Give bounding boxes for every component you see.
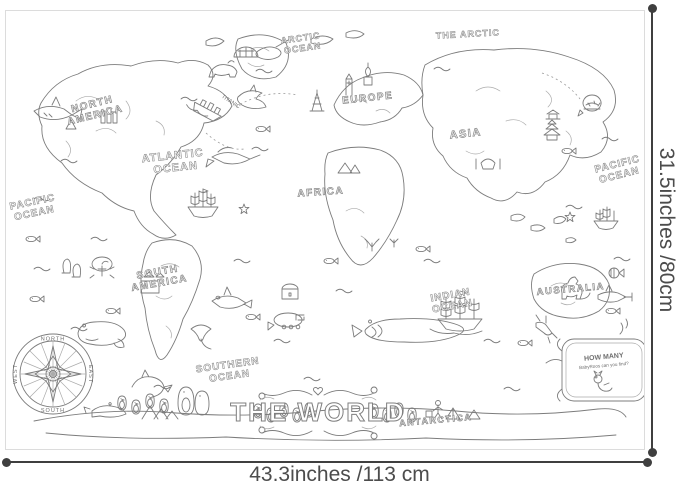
dashed-route: [206, 73, 580, 149]
baby-roo-icon: [594, 371, 612, 391]
moai-statues-icon: [62, 259, 81, 277]
starfish-icon: [239, 204, 249, 214]
submarine-icon: [268, 313, 304, 330]
the-arctic-label: THE ARCTIC: [436, 27, 501, 40]
africa-label: AFRICA: [297, 185, 344, 199]
tropical-fish-icon: [609, 268, 624, 278]
coral-icon: [365, 239, 398, 251]
onion-dome-icon: [364, 63, 372, 85]
sperm-whale-icon: [78, 322, 126, 348]
poster-title: THE WORLD: [230, 397, 405, 427]
eiffel-tower-icon: [310, 90, 324, 111]
dimension-dot-top: [648, 4, 657, 13]
galleon-atlantic-icon: [188, 189, 218, 218]
small-fish: [26, 126, 620, 346]
world-map-art: TITANIC: [6, 11, 644, 449]
pufferfish-icon: [578, 95, 601, 116]
southeast-asia-islands: [511, 214, 576, 242]
compass-rose: NORTH SOUTH EAST WEST: [13, 334, 93, 414]
orca-icon: [212, 287, 252, 308]
australia-label: AUSTRALIA: [536, 281, 605, 298]
south-america-outline: [141, 240, 201, 360]
coloring-poster: TITANIC: [5, 10, 645, 450]
big-ben-icon: [346, 74, 352, 95]
asia-outline: [422, 49, 616, 201]
width-dimension-label: 43.3inches /113 cm: [0, 463, 679, 487]
emperor-penguins: [178, 387, 209, 415]
compass-south-label: SOUTH: [41, 408, 65, 414]
height-dimension-line: [651, 8, 653, 452]
starfish-icon-2: [565, 212, 575, 222]
lobster-icon: [536, 315, 557, 343]
europe-label: EUROPE: [342, 90, 394, 106]
pagoda-icon: [544, 120, 560, 140]
stingray-icon: [191, 325, 211, 349]
compass-east-label: EAST: [87, 365, 93, 383]
blue-whale-icon: [352, 319, 464, 343]
treasure-chest-icon: [282, 284, 298, 299]
height-dimension-label: 31.5inches /80cm: [654, 148, 678, 313]
compass-north-label: NORTH: [41, 337, 65, 343]
sea-turtle-icon: [90, 257, 114, 278]
asia-label: ASIA: [449, 126, 482, 141]
dolphin-icon-north: [238, 85, 267, 109]
marlin-icon: [206, 148, 260, 168]
africa-outline: [325, 147, 404, 265]
galleon-east-icon: [594, 207, 618, 230]
compass-west-label: WEST: [13, 364, 19, 384]
how-many-box: HOW MANY BabyRoos can you find?: [546, 339, 644, 401]
map-labels: ARCTIC OCEAN THE ARCTIC NORTH AMERICA EU…: [9, 27, 641, 428]
dolphin-icon-south: [132, 370, 172, 397]
dimension-dot-bottom: [648, 448, 657, 457]
wave-marks: [34, 67, 630, 391]
igloo-icon: [234, 47, 258, 57]
title-banner: THE WORLD: [230, 387, 405, 439]
